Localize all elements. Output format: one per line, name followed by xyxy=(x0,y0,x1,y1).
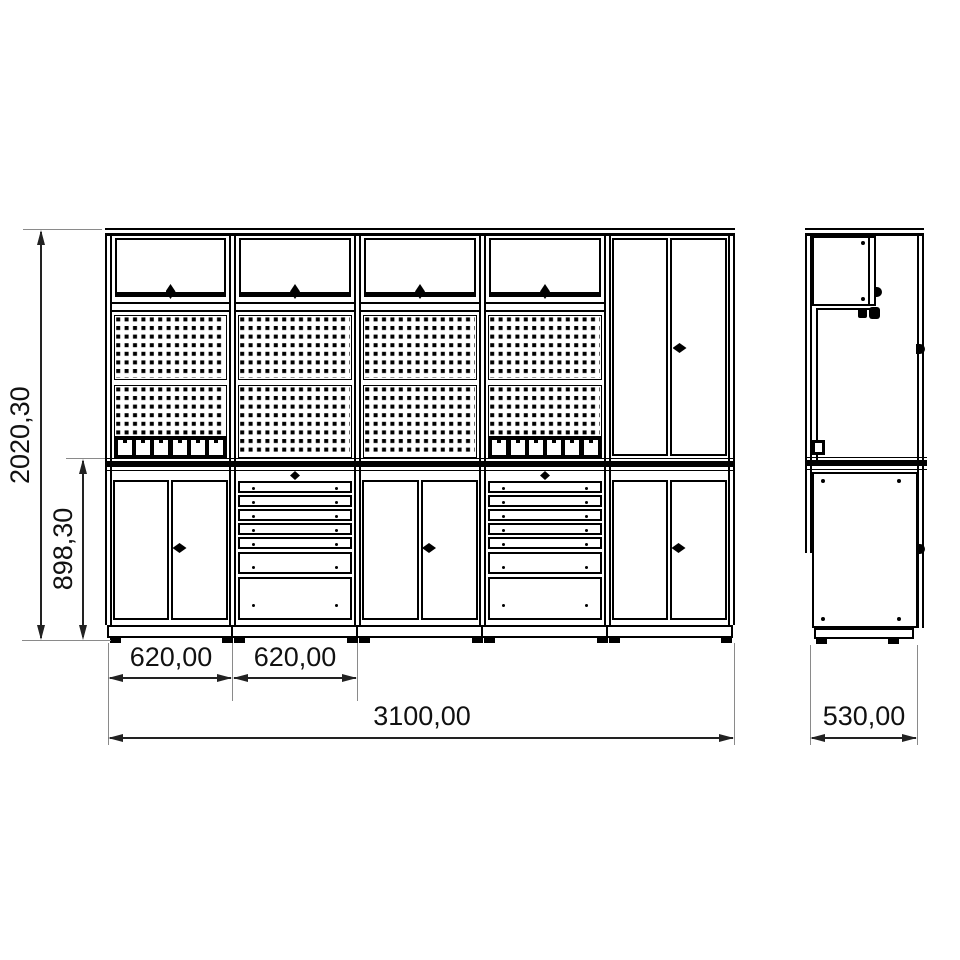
plinth xyxy=(481,625,609,638)
lock-icon xyxy=(290,471,300,480)
screw-dot xyxy=(502,515,505,518)
foot xyxy=(609,638,620,643)
plinth xyxy=(814,628,914,639)
pegboard-pattern xyxy=(488,385,602,437)
screw-dot xyxy=(585,566,588,569)
tool-rail-slot xyxy=(529,440,543,455)
screw-dot xyxy=(252,487,255,490)
tool-hook-icon xyxy=(534,440,538,443)
screw-dot xyxy=(585,529,588,532)
pegboard-pattern xyxy=(114,385,227,437)
wall-rail-line xyxy=(816,308,876,310)
frame-post xyxy=(105,228,112,625)
worktop xyxy=(806,460,927,466)
tool-rail-slot xyxy=(209,440,223,455)
ext-530-left xyxy=(810,645,811,745)
hinge-bracket xyxy=(858,308,867,318)
dim-line-module1 xyxy=(110,677,231,679)
drawer-front xyxy=(488,537,602,549)
tool-hook-icon xyxy=(570,440,574,443)
cabinet-door-edge xyxy=(868,238,870,304)
tool-rail-slot xyxy=(511,440,525,455)
extension-line-top xyxy=(23,229,102,230)
tall-cabinet-door xyxy=(612,238,668,456)
drawing-canvas: 2020,30 898,30 620,00 620,00 3100,00 530… xyxy=(0,0,960,960)
ext-620-right xyxy=(357,643,358,701)
screw-dot xyxy=(502,529,505,532)
foot xyxy=(484,638,495,643)
tool-rail-slot xyxy=(118,440,132,455)
arrow-left-icon xyxy=(108,734,123,742)
screw-dot xyxy=(861,241,865,245)
screw-dot xyxy=(502,487,505,490)
screw-dot xyxy=(585,515,588,518)
dim-line-bench-height xyxy=(82,461,84,637)
tool-rail-slot xyxy=(154,440,168,455)
base-cabinet-side xyxy=(812,472,918,628)
side-view xyxy=(800,228,930,648)
worktop-edge xyxy=(105,458,735,459)
pegboard-panel xyxy=(238,315,352,380)
tool-rail-slot xyxy=(565,440,579,455)
arrow-right-icon xyxy=(902,734,917,742)
door-handle-icon xyxy=(874,287,882,297)
screw-dot xyxy=(502,604,505,607)
worktop-edge xyxy=(806,469,927,470)
cabinet-door xyxy=(362,480,419,620)
screw-dot xyxy=(252,529,255,532)
worktop-edge xyxy=(105,470,735,471)
ext-620-left xyxy=(108,643,109,745)
screw-dot xyxy=(861,297,865,301)
lock-icon xyxy=(540,471,550,480)
foot xyxy=(234,638,245,643)
screw-dot xyxy=(585,487,588,490)
plinth xyxy=(231,625,359,638)
frame-post xyxy=(728,228,735,625)
plinth xyxy=(606,625,733,638)
front-view xyxy=(105,228,735,648)
back-frame-panel xyxy=(805,228,812,553)
screw-dot xyxy=(821,479,825,483)
dim-module1-label: 620,00 xyxy=(110,646,232,668)
pegboard-panel xyxy=(363,385,477,458)
screw-dot xyxy=(252,543,255,546)
tool-rail-slot xyxy=(547,440,561,455)
screw-dot xyxy=(502,501,505,504)
pegboard-pattern xyxy=(238,385,352,458)
arrow-right-icon xyxy=(719,734,734,742)
front-face-panel xyxy=(917,228,924,628)
tool-hook-icon xyxy=(196,440,200,443)
drawer-front xyxy=(488,509,602,521)
top-rail xyxy=(805,228,924,236)
hinge-bracket xyxy=(869,307,880,319)
screw-dot xyxy=(897,479,901,483)
dim-bench-height-label: 898,30 xyxy=(52,501,74,597)
arrow-right-icon xyxy=(342,674,357,682)
tool-rail-slot xyxy=(191,440,205,455)
pegboard-panel xyxy=(488,315,602,380)
drawer-front xyxy=(238,537,352,549)
screw-dot xyxy=(252,604,255,607)
screw-dot xyxy=(335,604,338,607)
tool-hook-icon xyxy=(516,440,520,443)
drawer-front xyxy=(488,552,602,574)
dim-total-height-label: 2020,30 xyxy=(9,388,31,484)
pegboard-pattern xyxy=(488,315,602,380)
screw-dot xyxy=(335,566,338,569)
drawer-front xyxy=(488,481,602,493)
drawer-front xyxy=(238,495,352,507)
arrow-down-icon xyxy=(37,625,45,640)
ground-line xyxy=(22,640,111,641)
screw-dot xyxy=(252,566,255,569)
screw-dot xyxy=(821,617,825,621)
ext-3100-right xyxy=(734,643,735,745)
arrow-left-icon xyxy=(233,674,248,682)
cabinet-door xyxy=(113,480,169,620)
arrow-down-icon xyxy=(79,625,87,640)
tool-hook-icon xyxy=(497,440,501,443)
arrow-left-icon xyxy=(810,734,825,742)
screw-dot xyxy=(335,529,338,532)
worktop xyxy=(105,461,735,467)
drawer-front xyxy=(238,552,352,574)
dim-line-depth xyxy=(812,737,916,739)
tool-rail-slot xyxy=(136,440,150,455)
tool-rail-slot xyxy=(584,440,598,455)
tool-rail-slot xyxy=(492,440,506,455)
tool-hook-icon xyxy=(178,440,182,443)
tool-rail-slot xyxy=(173,440,187,455)
tool-rail xyxy=(488,437,602,458)
foot xyxy=(597,638,608,643)
drawer-front xyxy=(488,523,602,535)
pegboard-pattern xyxy=(238,315,352,380)
screw-dot xyxy=(252,515,255,518)
bench-height-tick xyxy=(66,458,106,459)
foot xyxy=(110,638,121,643)
pegboard-pattern xyxy=(114,315,227,380)
foot xyxy=(359,638,370,643)
foot xyxy=(888,639,899,644)
arrow-left-icon xyxy=(108,674,123,682)
top-rail xyxy=(105,228,735,236)
screw-dot xyxy=(335,487,338,490)
tool-rail xyxy=(114,437,227,458)
wall-cabinet-side xyxy=(812,236,876,306)
drawer-front xyxy=(238,577,352,620)
cabinet-door xyxy=(612,480,668,620)
tool-hook-icon xyxy=(552,440,556,443)
foot xyxy=(721,638,732,643)
screw-dot xyxy=(502,566,505,569)
tool-hook-icon xyxy=(159,440,163,443)
dim-module2-label: 620,00 xyxy=(234,646,356,668)
screw-dot xyxy=(252,501,255,504)
ext-530-right xyxy=(917,645,918,745)
dim-depth-label: 530,00 xyxy=(794,705,934,727)
tool-hook-icon xyxy=(214,440,218,443)
pegboard-pattern xyxy=(363,315,477,380)
drawer-front xyxy=(238,509,352,521)
plinth xyxy=(107,625,234,638)
worktop-edge xyxy=(806,457,927,458)
screw-dot xyxy=(585,604,588,607)
dim-line-module2 xyxy=(234,677,356,679)
pegboard-pattern xyxy=(363,385,477,458)
drawer-front xyxy=(488,577,602,620)
screw-dot xyxy=(335,501,338,504)
screw-dot xyxy=(335,543,338,546)
support-bracket xyxy=(812,440,825,455)
arrow-up-icon xyxy=(37,230,45,245)
pegboard-panel xyxy=(238,385,352,458)
tool-hook-icon xyxy=(589,440,593,443)
screw-dot xyxy=(335,515,338,518)
dim-line-total-width xyxy=(110,737,733,739)
plinth xyxy=(356,625,484,638)
pegboard-panel xyxy=(114,315,227,380)
screw-dot xyxy=(585,501,588,504)
dim-total-width-label: 3100,00 xyxy=(342,705,502,727)
dim-line-total-height xyxy=(40,232,42,638)
arrow-up-icon xyxy=(79,459,87,474)
arrow-right-icon xyxy=(217,674,232,682)
pegboard-panel xyxy=(114,385,227,437)
foot xyxy=(472,638,483,643)
foot xyxy=(816,639,827,644)
frame-post xyxy=(604,228,611,625)
drawer-front xyxy=(238,523,352,535)
drawer-front xyxy=(238,481,352,493)
tool-hook-icon xyxy=(123,440,127,443)
drawer-front xyxy=(488,495,602,507)
frame-upright-line xyxy=(816,310,818,460)
screw-dot xyxy=(897,617,901,621)
screw-dot xyxy=(502,543,505,546)
frame-post xyxy=(354,228,361,625)
screw-dot xyxy=(585,543,588,546)
frame-post xyxy=(229,228,236,625)
pegboard-panel xyxy=(488,385,602,437)
tool-hook-icon xyxy=(141,440,145,443)
frame-post xyxy=(479,228,486,625)
pegboard-panel xyxy=(363,315,477,380)
ext-620-mid xyxy=(232,643,233,701)
